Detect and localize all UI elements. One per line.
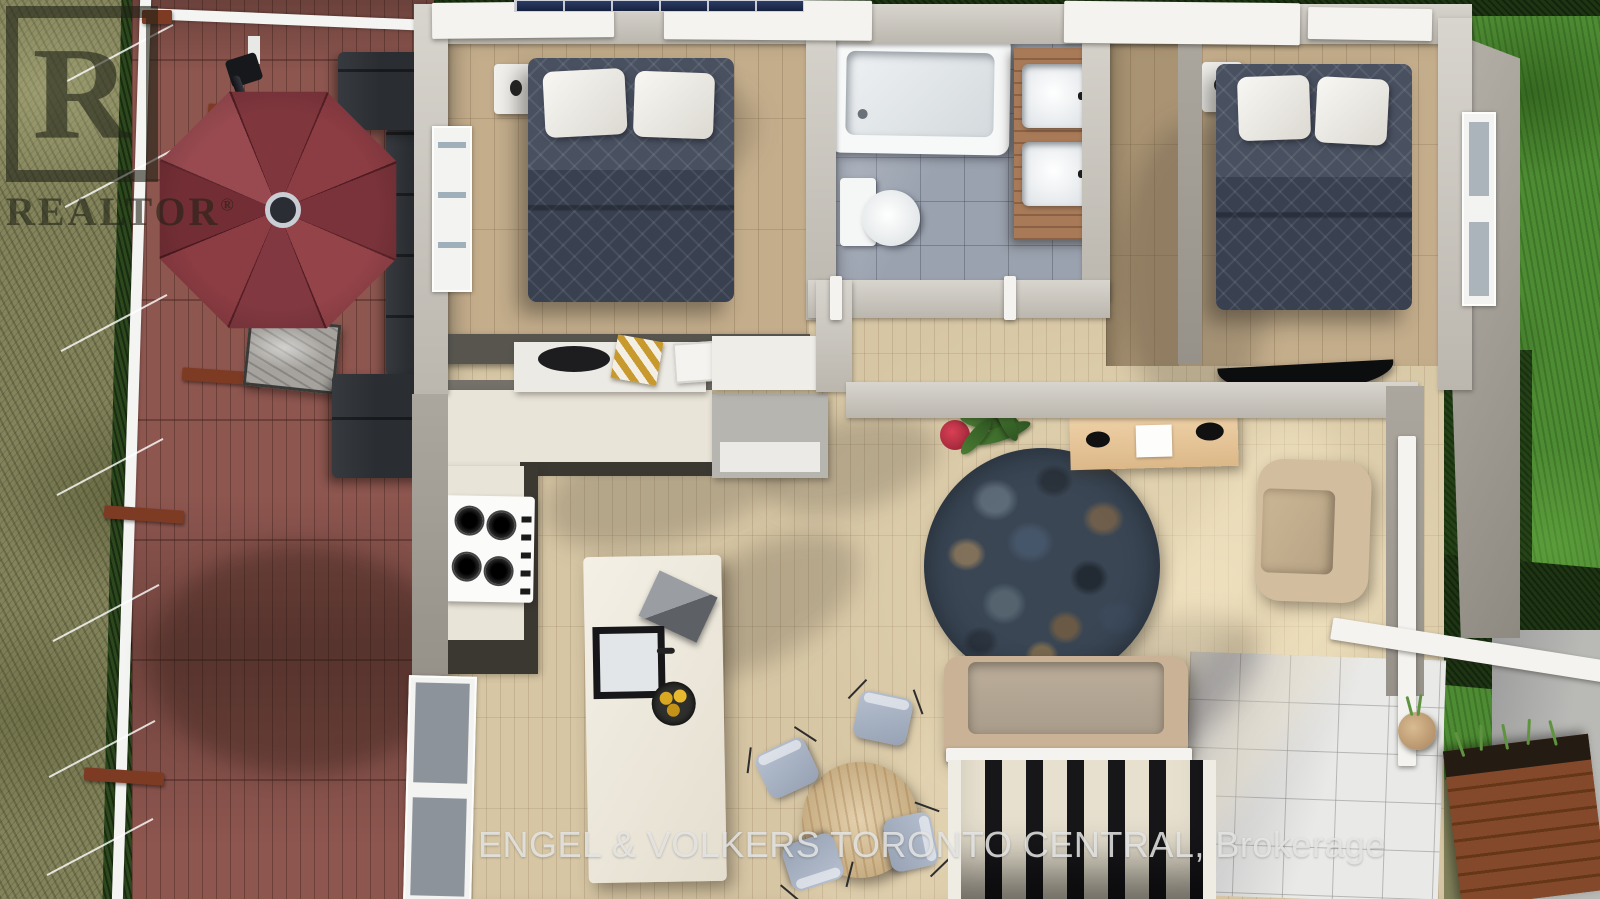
wood-planter-box xyxy=(1443,734,1600,899)
round-area-rug xyxy=(924,448,1160,684)
console-speaker xyxy=(1086,431,1110,448)
kitchen-lower-cabinet xyxy=(440,640,538,674)
wall-living-north xyxy=(846,382,1418,418)
window-slat xyxy=(438,242,466,248)
toilet xyxy=(862,190,920,246)
wall-bathroom-bedroom2 xyxy=(1082,4,1110,300)
entry-bench xyxy=(514,342,706,392)
decor-bowl xyxy=(538,346,610,372)
pillow xyxy=(1237,75,1311,141)
bathtub-drain xyxy=(858,109,868,119)
media-console xyxy=(1069,412,1238,470)
umbrella-hub xyxy=(265,192,301,228)
window-slat xyxy=(438,192,466,198)
stove-burner xyxy=(456,507,482,533)
island-faucet xyxy=(657,648,675,654)
kitchen-cabinet-front xyxy=(520,462,712,476)
pillow xyxy=(542,68,627,138)
lemon xyxy=(667,704,680,717)
realtor-watermark: R REALTOR® xyxy=(6,6,266,235)
sliding-glass-door xyxy=(403,675,477,899)
door-glass-pane xyxy=(410,797,467,896)
island-sink xyxy=(592,626,665,699)
white-cabinet xyxy=(712,336,828,390)
registered-mark: ® xyxy=(220,195,236,215)
solar-panels xyxy=(514,0,804,12)
exterior-wall-left-mid xyxy=(412,394,448,676)
roof-cap xyxy=(1064,1,1300,45)
wall-bathroom-bottom xyxy=(808,280,1110,318)
wall-bedroom1-bathroom xyxy=(806,4,836,320)
window-glass xyxy=(1469,122,1489,196)
realtor-logo-text: REALTOR® xyxy=(6,188,266,235)
nightstand-item xyxy=(510,80,522,96)
pillow xyxy=(1314,76,1389,146)
wall-bedroom2-closet xyxy=(1178,34,1202,364)
grass-tuft xyxy=(1479,725,1482,751)
realtor-logo-box: R xyxy=(6,6,158,182)
pillow xyxy=(633,71,715,140)
bathtub xyxy=(829,32,1011,155)
appliance-panel xyxy=(720,442,820,472)
right-wall-window xyxy=(1462,112,1496,306)
armchair-seat xyxy=(1261,488,1336,574)
striped-pillow xyxy=(611,334,664,385)
floor-plan-render: R REALTOR® ENGEL & VOLKERS TORONTO CENTR… xyxy=(0,0,1600,899)
window-glass xyxy=(1469,222,1489,296)
realtor-logo-letter: R xyxy=(33,28,131,160)
living-room-sofa xyxy=(944,656,1188,762)
bathtub-basin xyxy=(845,51,994,138)
outdoor-pot xyxy=(1398,712,1436,750)
door-glass-pane xyxy=(413,682,470,783)
stove-burner xyxy=(485,558,511,584)
roof-cap xyxy=(1308,7,1433,41)
bedroom2-bed xyxy=(1216,64,1412,310)
realtor-label: REALTOR xyxy=(6,189,220,234)
kitchen-appliance xyxy=(712,394,828,478)
bedroom1-bed xyxy=(528,58,734,302)
stove-knobs xyxy=(520,505,532,595)
lemon xyxy=(673,689,686,702)
gas-stove xyxy=(443,495,535,603)
left-wall-window xyxy=(432,126,472,292)
door-frame xyxy=(1004,276,1016,320)
stove-burner xyxy=(453,553,479,579)
door-frame xyxy=(830,276,842,320)
sofa-seat xyxy=(968,662,1164,734)
console-paper xyxy=(1136,425,1173,458)
window-slat xyxy=(438,142,466,148)
kitchen-counter-top-run xyxy=(446,390,712,470)
console-speaker xyxy=(1196,422,1224,441)
accent-armchair xyxy=(1254,458,1373,604)
umbrella-shadow xyxy=(150,545,450,775)
brokerage-watermark: ENGEL & VOLKERS TORONTO CENTRAL, Brokera… xyxy=(478,824,1386,866)
fruit-bowl xyxy=(651,681,696,726)
stove-burner xyxy=(488,512,514,538)
